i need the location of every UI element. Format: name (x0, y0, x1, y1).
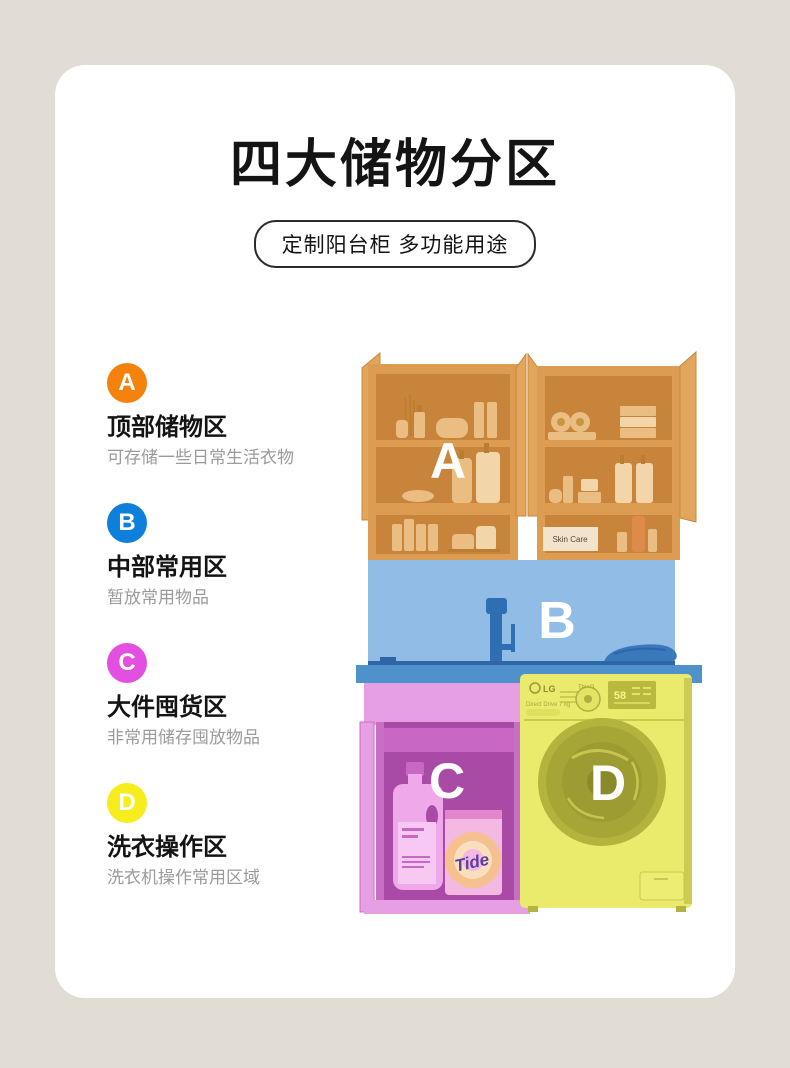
cabinet-door-middle-left-icon (516, 354, 526, 516)
drive-label: Direct Drive 7 kg (526, 702, 570, 708)
zone-a-desc: 可存储一些日常生活衣物 (107, 444, 347, 471)
subtitle-wrap: 定制阳台柜 多功能用途 (0, 220, 790, 268)
zone-d-desc: 洗衣机操作常用区域 (107, 864, 347, 891)
zone-b-title: 中部常用区 (107, 552, 347, 584)
zone-a-badge: A (107, 363, 147, 403)
zone-d-overlay-letter: D (590, 755, 626, 811)
subtitle-pill: 定制阳台柜 多功能用途 (254, 220, 537, 268)
zone-item-laundry: D 洗衣操作区 洗衣机操作常用区域 (107, 783, 347, 923)
cabinet-door-lower-icon (360, 722, 374, 912)
zone-b-overlay-letter: B (538, 592, 576, 650)
zone-item-top-storage: A 顶部储物区 可存储一些日常生活衣物 (107, 363, 347, 503)
zone-d-title: 洗衣操作区 (107, 832, 347, 864)
page-background: 四大储物分区 定制阳台柜 多功能用途 A 顶部储物区 可存储一些日常生活衣物 B… (0, 0, 790, 1068)
zone-c-badge: C (107, 643, 147, 683)
cabinet-door-right-icon (680, 352, 696, 522)
zone-d-washer-graphic: LG ThinQ Direct Drive 7 kg 58 (520, 674, 692, 912)
zone-a-cabinet-graphic: Skin Care A (362, 352, 696, 560)
zone-c-cabinet-graphic: Tide C (360, 683, 530, 914)
zone-c-overlay-letter: C (429, 753, 465, 809)
zone-legend: A 顶部储物区 可存储一些日常生活衣物 B 中部常用区 暂放常用物品 C 大件囤… (107, 363, 347, 923)
cabinet-illustration: Skin Care A (356, 348, 702, 922)
washer-filter-door (640, 872, 684, 900)
skin-care-label: Skin Care (552, 535, 588, 544)
zone-c-desc: 非常用储存囤放物品 (107, 724, 347, 751)
zone-b-badge: B (107, 503, 147, 543)
zone-b-sink-graphic: B (356, 560, 702, 683)
zone-c-title: 大件囤货区 (107, 692, 347, 724)
tide-detergent-bag-icon: Tide (445, 810, 502, 895)
zone-a-title: 顶部储物区 (107, 412, 347, 444)
zone-b-desc: 暂放常用物品 (107, 584, 347, 611)
zone-item-bulk-stock: C 大件囤货区 非常用储存囤放物品 (107, 643, 347, 783)
zone-item-middle-common: B 中部常用区 暂放常用物品 (107, 503, 347, 643)
cabinet-door-middle-right-icon (528, 354, 538, 516)
lg-logo: LG (543, 684, 556, 694)
page-title: 四大储物分区 (0, 122, 790, 197)
zone-a-overlay-letter: A (430, 433, 466, 489)
washer-display-value: 58 (614, 690, 626, 702)
zone-d-badge: D (107, 783, 147, 823)
